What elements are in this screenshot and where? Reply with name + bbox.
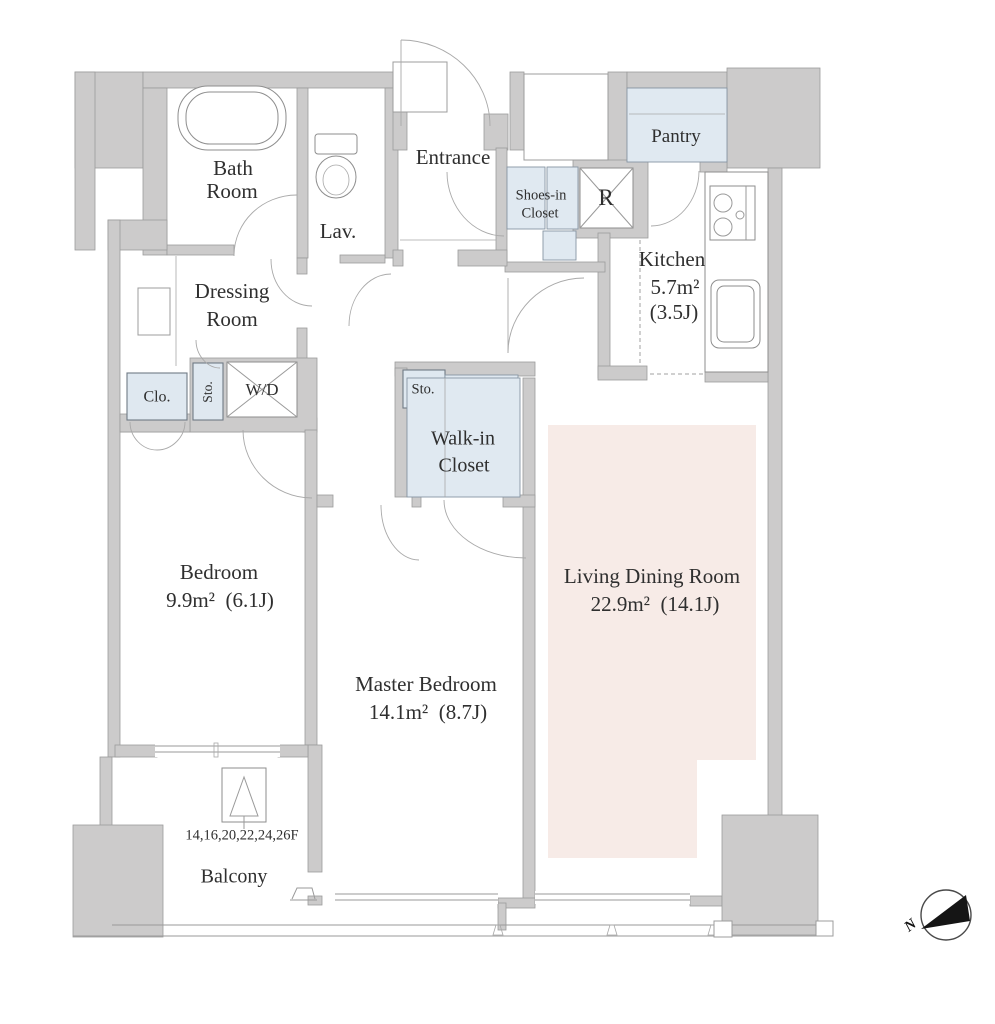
master-bedroom-area-label: 14.1m² (8.7J) [369, 701, 487, 723]
closet-label: Clo. [143, 390, 170, 407]
shoes-closet-label-line1: Shoes-in [516, 188, 567, 203]
walk-in-closet-label-line1: Walk-in [431, 429, 495, 450]
dressing-room-label-line2: Room [206, 308, 257, 330]
compass-icon [921, 890, 971, 940]
bath-room-label-line2: Room [206, 180, 257, 202]
living-dining-area-label: 22.9m² (14.1J) [591, 593, 720, 615]
toilet-icon [315, 134, 357, 198]
stove-icon [710, 186, 755, 240]
walk-in-closet-label-line2: Closet [438, 456, 489, 477]
floorplan: Bath Room Lav. Entrance Shoes-in Closet … [0, 0, 995, 1024]
balcony-floors-label: 14,16,20,22,24,26F [185, 828, 298, 843]
bedroom-area-label: 9.9m² (6.1J) [166, 589, 274, 611]
entrance-label: Entrance [416, 146, 491, 168]
kitchen-tatami-label: (3.5J) [650, 301, 698, 323]
balcony-label: Balcony [201, 867, 268, 888]
emergency-hatch-icon [222, 768, 266, 829]
living-dining-label: Living Dining Room [564, 565, 740, 587]
pantry-label: Pantry [651, 127, 701, 147]
pantry-box [627, 88, 727, 162]
bathtub-icon [178, 86, 286, 150]
washer-dryer-label: W/D [245, 381, 278, 399]
kitchen-area-label: 5.7m² [651, 276, 700, 298]
sink-icon [711, 280, 760, 348]
dressing-room-label-line1: Dressing [195, 280, 270, 302]
master-bedroom-label: Master Bedroom [355, 673, 497, 695]
storage1-label: Sto. [201, 381, 215, 402]
shoes-closet-label-line2: Closet [521, 206, 558, 221]
floorplan-drawing [0, 0, 995, 1024]
storage2-label: Sto. [412, 382, 435, 397]
bedroom-label: Bedroom [180, 561, 258, 583]
refrigerator-label: R [598, 186, 613, 210]
bath-room-label-line1: Bath [213, 157, 253, 179]
kitchen-label: Kitchen [639, 248, 705, 270]
lav-label: Lav. [320, 220, 357, 242]
